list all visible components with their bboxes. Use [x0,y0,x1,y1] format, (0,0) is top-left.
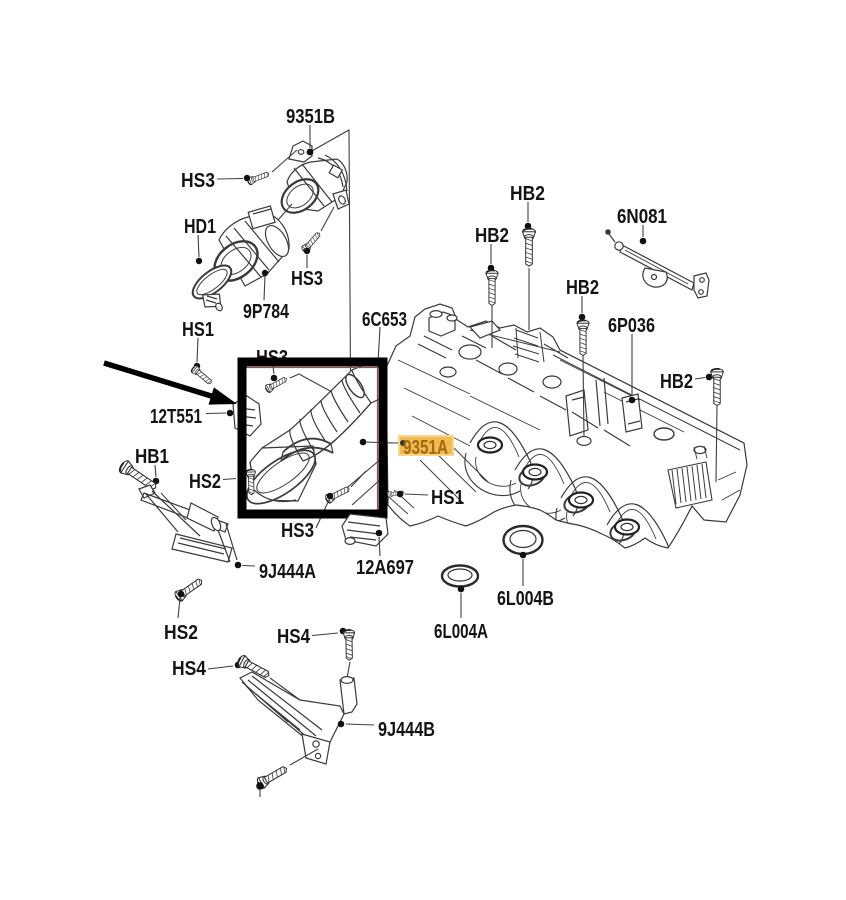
svg-text:9J444A: 9J444A [259,561,316,583]
svg-text:HB2: HB2 [566,277,599,299]
svg-text:HB2: HB2 [660,371,693,393]
svg-text:HS3: HS3 [291,268,323,290]
svg-text:HS2: HS2 [189,471,221,493]
svg-text:9P784: 9P784 [243,301,290,323]
svg-text:HS4: HS4 [172,658,207,680]
svg-text:9351A: 9351A [403,437,448,459]
svg-text:6L004A: 6L004A [434,621,488,643]
svg-text:12T551: 12T551 [150,406,202,428]
svg-text:HS1: HS1 [182,319,214,341]
svg-text:6N081: 6N081 [617,206,667,228]
svg-text:6L004B: 6L004B [497,588,554,610]
svg-text:HS3: HS3 [281,520,314,542]
svg-text:9J444B: 9J444B [378,719,435,741]
svg-text:6C653: 6C653 [362,309,407,331]
svg-text:9351B: 9351B [286,106,335,128]
svg-text:HS3: HS3 [181,170,215,192]
svg-text:HS2: HS2 [164,622,198,644]
svg-text:HS1: HS1 [431,487,464,509]
svg-text:HS4: HS4 [277,626,311,648]
svg-text:HB2: HB2 [510,183,545,205]
svg-text:12A697: 12A697 [356,557,414,579]
svg-text:HD1: HD1 [184,216,216,238]
svg-text:HB1: HB1 [135,446,169,468]
svg-text:HB2: HB2 [475,225,509,247]
svg-text:6P036: 6P036 [608,315,655,337]
